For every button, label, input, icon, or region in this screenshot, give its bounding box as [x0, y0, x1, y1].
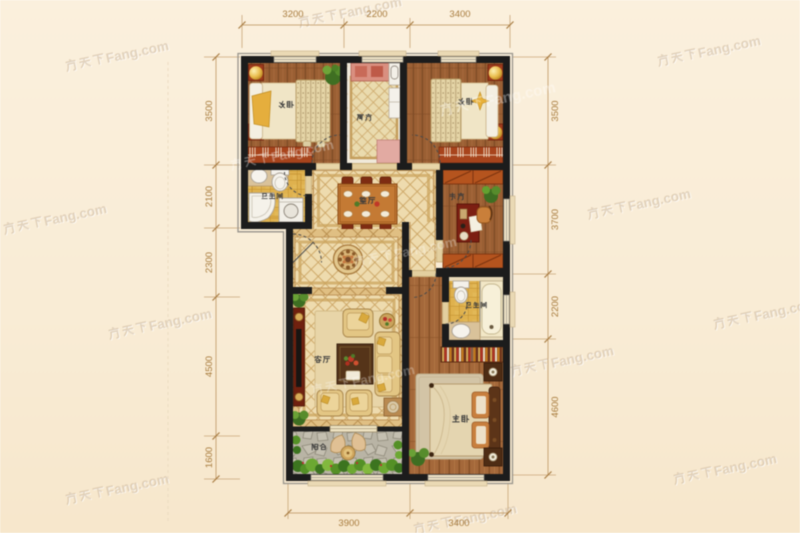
svg-text:3400: 3400	[448, 518, 469, 529]
svg-text:3500: 3500	[550, 100, 561, 121]
svg-text:3900: 3900	[338, 518, 359, 529]
svg-text:2200: 2200	[366, 9, 387, 20]
svg-text:1600: 1600	[204, 447, 215, 468]
svg-text:2100: 2100	[204, 186, 215, 207]
svg-text:2200: 2200	[550, 296, 561, 317]
svg-text:3700: 3700	[550, 209, 561, 230]
svg-text:2300: 2300	[204, 252, 215, 273]
svg-text:3200: 3200	[282, 9, 303, 20]
svg-text:3400: 3400	[449, 9, 470, 20]
svg-text:4600: 4600	[550, 396, 561, 417]
svg-text:4500: 4500	[204, 356, 215, 377]
svg-text:3500: 3500	[204, 100, 215, 121]
